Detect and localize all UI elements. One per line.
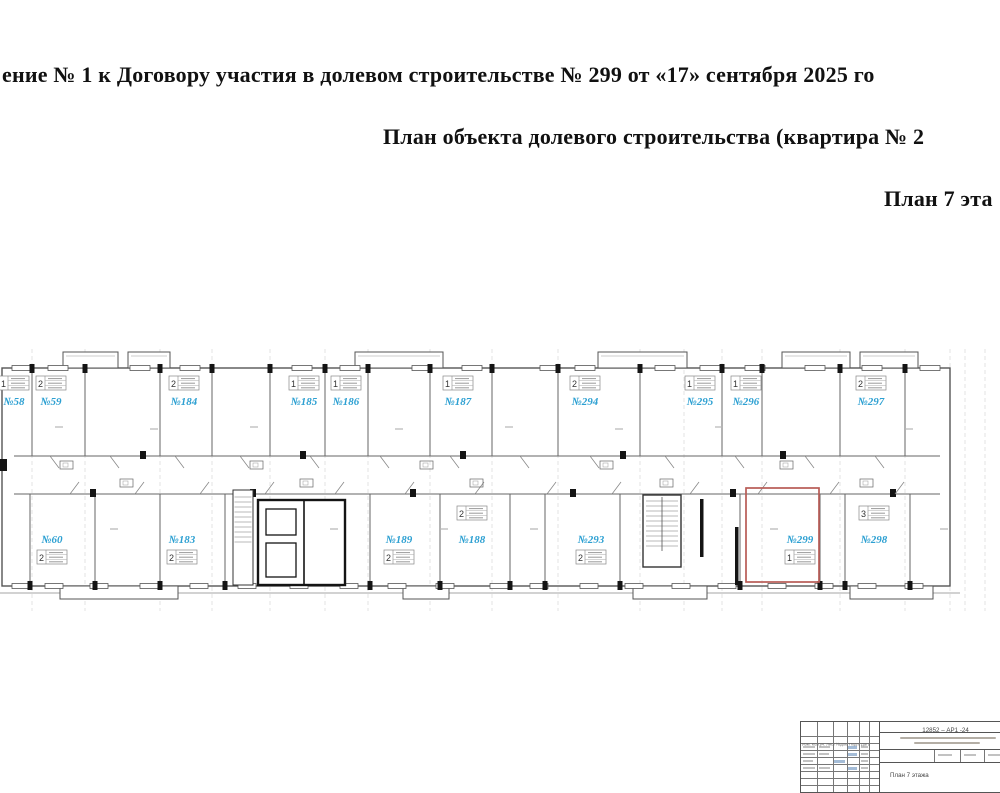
apartment-label: №293 (577, 534, 605, 546)
stamp-project-desc-line (914, 742, 980, 744)
apartment-label: №296 (732, 396, 760, 408)
apartment-room-count: 1 (445, 379, 450, 389)
apartment-room-count: 3 (861, 509, 866, 519)
floor-plan: №581№592№1842№1851№1861№1871№2942№2951№2… (0, 339, 1000, 620)
apartment-label: №58 (2, 396, 25, 408)
apartment-label: №298 (860, 534, 888, 546)
apartment-label: №185 (290, 396, 318, 408)
apartment-room-count: 1 (687, 379, 692, 389)
stamp-stage-row (880, 749, 1000, 763)
document-title-line-1: ение № 1 к Договору участия в долевом ст… (2, 62, 875, 88)
apartment-label: №299 (786, 534, 814, 546)
apartment-room-count: 2 (39, 553, 44, 563)
apartment-label: №189 (385, 534, 413, 546)
apartment-room-count: 1 (787, 553, 792, 563)
apartment-room-count: 2 (386, 553, 391, 563)
apartment-room-count: 2 (38, 379, 43, 389)
apartment-label: №294 (571, 396, 599, 408)
apartment-room-count: 2 (572, 379, 577, 389)
document-title-line-3: План 7 эта (884, 186, 993, 212)
apartment-room-count: 1 (1, 379, 6, 389)
floor-plan-area: №581№592№1842№1851№1861№1871№2942№2951№2… (0, 339, 1000, 620)
apartment-label: №59 (39, 396, 62, 408)
apartment-room-count: 2 (169, 553, 174, 563)
apartment-label: №186 (332, 396, 360, 408)
document-title-line-2: План объекта долевого строительства (ква… (383, 124, 924, 150)
stamp-info-section: 12852 – АР1 -24 План 7 этажа ПОР (879, 722, 1000, 792)
apartment-room-count: 1 (333, 379, 338, 389)
drawing-stamp: Изм. Кол.уч. Лист №док. Подп. Дата 12852… (800, 721, 1000, 793)
apartment-label: №297 (857, 396, 885, 408)
apartment-room-count: 2 (171, 379, 176, 389)
apartment-label: №295 (686, 396, 714, 408)
apartment-room-count: 1 (733, 379, 738, 389)
apartment-room-count: 2 (578, 553, 583, 563)
apartment-room-count: 1 (291, 379, 296, 389)
apartment-label: №60 (40, 534, 63, 546)
apartment-label: №183 (168, 534, 196, 546)
stamp-sheet-title-cell: План 7 этажа (890, 767, 952, 785)
stamp-sheet-title: План 7 этажа (890, 772, 929, 779)
apartment-label: №184 (170, 396, 198, 408)
stamp-doc-code: 12852 – АР1 -24 (922, 727, 969, 734)
apartment-label: №187 (444, 396, 472, 408)
apartment-room-count: 2 (459, 509, 464, 519)
apartment-label: №188 (458, 534, 486, 546)
apartment-room-count: 2 (858, 379, 863, 389)
scanned-document-page: { "document": { "line1": "ение № 1 к Дог… (0, 0, 1000, 781)
stamp-doc-code-cell: 12852 – АР1 -24 (880, 722, 1000, 733)
stamp-project-desc-line (900, 737, 996, 739)
